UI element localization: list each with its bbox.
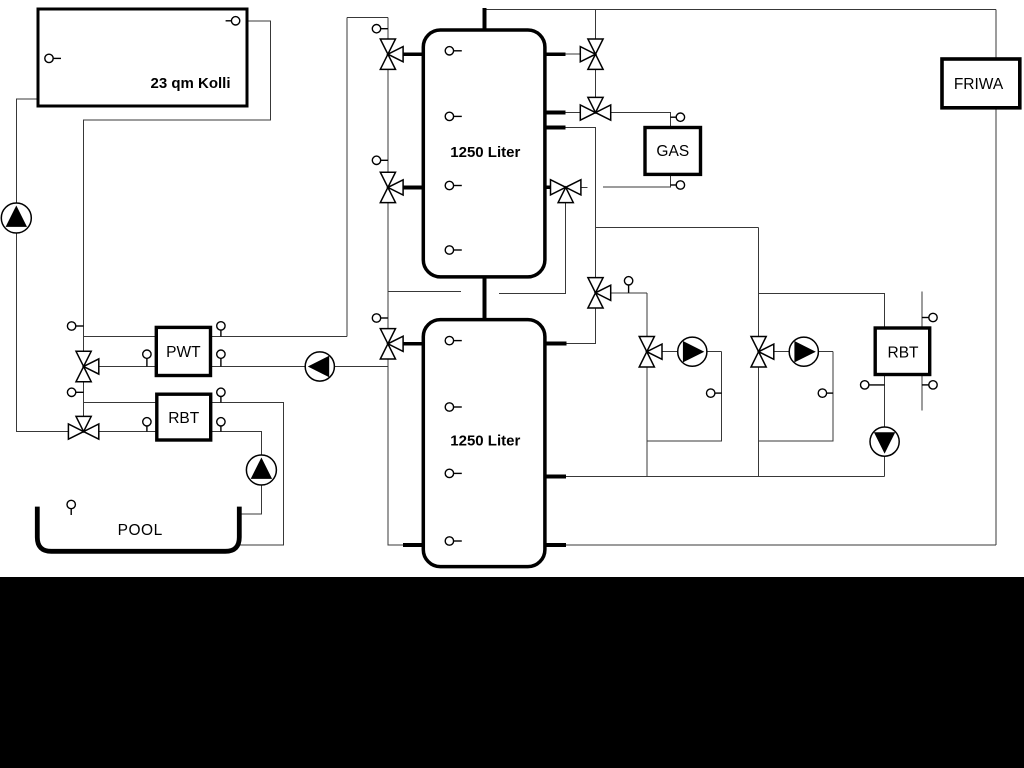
svg-text:POOL: POOL xyxy=(118,522,163,539)
svg-text:RBT: RBT xyxy=(168,410,200,427)
svg-text:FRIWA: FRIWA xyxy=(954,76,1004,93)
svg-text:1250 Liter: 1250 Liter xyxy=(450,433,520,450)
svg-text:GAS: GAS xyxy=(656,143,689,160)
svg-text:PWT: PWT xyxy=(166,344,201,361)
svg-text:1250 Liter: 1250 Liter xyxy=(450,144,520,161)
svg-text:RBT: RBT xyxy=(888,344,920,361)
svg-text:23 qm Kolli: 23 qm Kolli xyxy=(150,75,230,92)
